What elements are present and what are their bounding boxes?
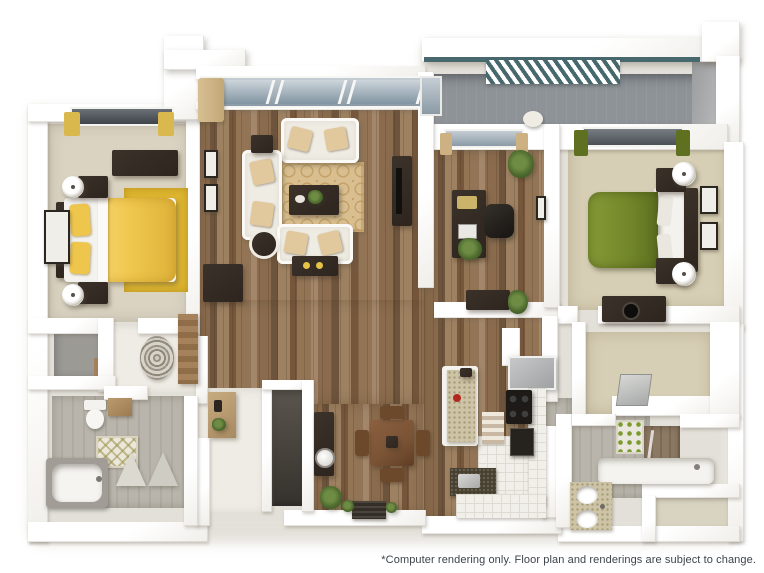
outer-wall-right-mid <box>724 142 744 330</box>
bathroom2-top-wall <box>572 414 616 426</box>
balcony-stool <box>523 111 543 127</box>
dresser-tv <box>622 302 640 320</box>
bedroom1-curtain-left <box>64 112 80 136</box>
bedroom1-lamp <box>62 284 84 306</box>
range-cooktop <box>506 390 532 424</box>
art-mat <box>702 224 716 248</box>
sofa-left <box>242 150 282 240</box>
round-side-table <box>252 232 276 256</box>
towel-rack <box>116 452 146 486</box>
mirror-glass <box>46 212 68 262</box>
water-closet-left-wall <box>642 496 656 542</box>
art-mat <box>206 186 216 210</box>
bedroom2-lamp <box>672 162 696 186</box>
sofa-pillow <box>249 158 276 186</box>
study-floor-plant <box>458 238 482 260</box>
study-bedroom2-wall <box>544 124 560 308</box>
entry-closet-wall-right <box>302 380 314 512</box>
entry-mirror <box>315 448 335 468</box>
kitchen-runner-rug <box>482 412 504 444</box>
coffee-table-tray <box>295 195 305 203</box>
bedroom1-lamp <box>62 176 84 198</box>
kitchen-bottom-wall <box>422 516 562 534</box>
bathtub <box>52 464 102 502</box>
kitchen-sink <box>458 474 480 488</box>
entry-bench <box>292 256 338 276</box>
wall-art <box>204 150 218 178</box>
water-closet-top-wall <box>642 484 740 498</box>
bedroom2-lamp <box>672 262 696 286</box>
sofa-pillow <box>287 126 314 153</box>
wall-art <box>204 184 218 212</box>
doormat-plant <box>386 502 397 513</box>
bedroom1-bed <box>56 196 178 284</box>
vanity-sink <box>576 510 598 528</box>
window-pane <box>347 80 426 104</box>
entry-closet-wall-left <box>262 380 272 512</box>
bedroom2-curtain-left <box>574 130 588 156</box>
art-mat <box>206 152 216 176</box>
medallion-rug <box>140 336 174 380</box>
bedroom1-mirror <box>44 210 70 264</box>
entry-step-wall <box>196 438 210 526</box>
wall-oven <box>510 428 534 456</box>
window-pane <box>275 80 348 104</box>
art-mat <box>702 188 716 212</box>
bench-decor <box>316 262 323 269</box>
tv-screen <box>396 168 402 214</box>
study-plant <box>508 150 534 178</box>
bedroom1-living-wall <box>186 104 200 338</box>
office-chair <box>484 204 514 238</box>
vanity-faucet <box>600 504 605 509</box>
disclaimer-text: *Computer rendering only. Floor plan and… <box>381 554 756 566</box>
shower-top-wall <box>680 414 740 428</box>
bench-decor <box>303 262 310 269</box>
desk-tray <box>457 196 477 209</box>
bathroom2-rug <box>616 420 644 454</box>
bedroom2-window <box>582 127 684 147</box>
sofa-pillow <box>283 230 308 255</box>
bedroom1-curtain-right <box>158 112 174 136</box>
tv-console <box>392 156 412 226</box>
sofa-pillow <box>249 201 274 228</box>
dining-chair <box>416 430 430 456</box>
bedroom1-bottom-wall-a <box>28 318 108 334</box>
vanity-sink <box>576 486 598 504</box>
closet2-laptop <box>616 374 652 406</box>
dining-chair <box>355 430 369 456</box>
balcony-door-glass <box>420 76 442 116</box>
counter-bowl <box>453 394 461 402</box>
bed-pillow <box>69 203 91 236</box>
desk-laptop <box>458 224 477 239</box>
shelf-vase <box>214 400 222 412</box>
living-window-curtain <box>198 78 224 122</box>
bedroom1-dresser <box>112 150 178 176</box>
sofa-top <box>281 118 359 163</box>
tub2-faucet <box>694 464 700 470</box>
towel-rack <box>148 452 178 486</box>
tub-faucet <box>96 476 102 482</box>
bathroom1-east-wall <box>184 396 198 526</box>
sofa-pillow <box>323 126 348 151</box>
closet1-bottom-wall <box>28 376 116 390</box>
sideboard-plant <box>508 290 528 314</box>
bed-pillow <box>69 241 91 274</box>
floor-plan-rendering: *Computer rendering only. Floor plan and… <box>0 0 764 573</box>
entry-plant <box>320 486 342 509</box>
table-centerpiece <box>386 436 398 448</box>
art-mat <box>538 198 544 218</box>
doormat-plant <box>342 500 354 512</box>
study-curtain-left <box>440 133 452 155</box>
toilet-bowl <box>86 409 104 429</box>
bed-sheet-fold <box>98 198 108 282</box>
refrigerator <box>508 356 556 390</box>
sofa-pillow <box>317 230 344 257</box>
study-sideboard <box>466 290 510 310</box>
counter-item <box>460 368 472 377</box>
doormat <box>352 501 386 519</box>
bed-headboard <box>684 188 698 272</box>
kitchen-counter-bottom <box>456 494 546 518</box>
entry-shelf <box>208 392 236 438</box>
bed-duvet <box>104 198 176 282</box>
pergola-slats <box>486 60 620 84</box>
bathroom-door-leaf <box>178 314 198 384</box>
bathroom1-vanity <box>108 398 132 416</box>
bathtub2 <box>598 458 714 484</box>
bed-duvet <box>588 192 658 268</box>
media-console <box>203 264 243 302</box>
closet2-right-wall <box>710 322 740 418</box>
study-window <box>444 129 524 148</box>
dining-chair <box>380 468 404 482</box>
bathroom1-bottom-wall <box>28 522 208 542</box>
shelf-plant <box>212 418 226 431</box>
coffee-table-plant <box>308 190 323 204</box>
kitchen-peninsula-counter <box>447 370 475 442</box>
living-room-window <box>200 76 426 108</box>
closet2-left-wall <box>572 322 586 418</box>
side-table <box>251 135 273 153</box>
bedroom2-curtain-right <box>676 130 690 156</box>
dining-chair <box>380 406 404 419</box>
